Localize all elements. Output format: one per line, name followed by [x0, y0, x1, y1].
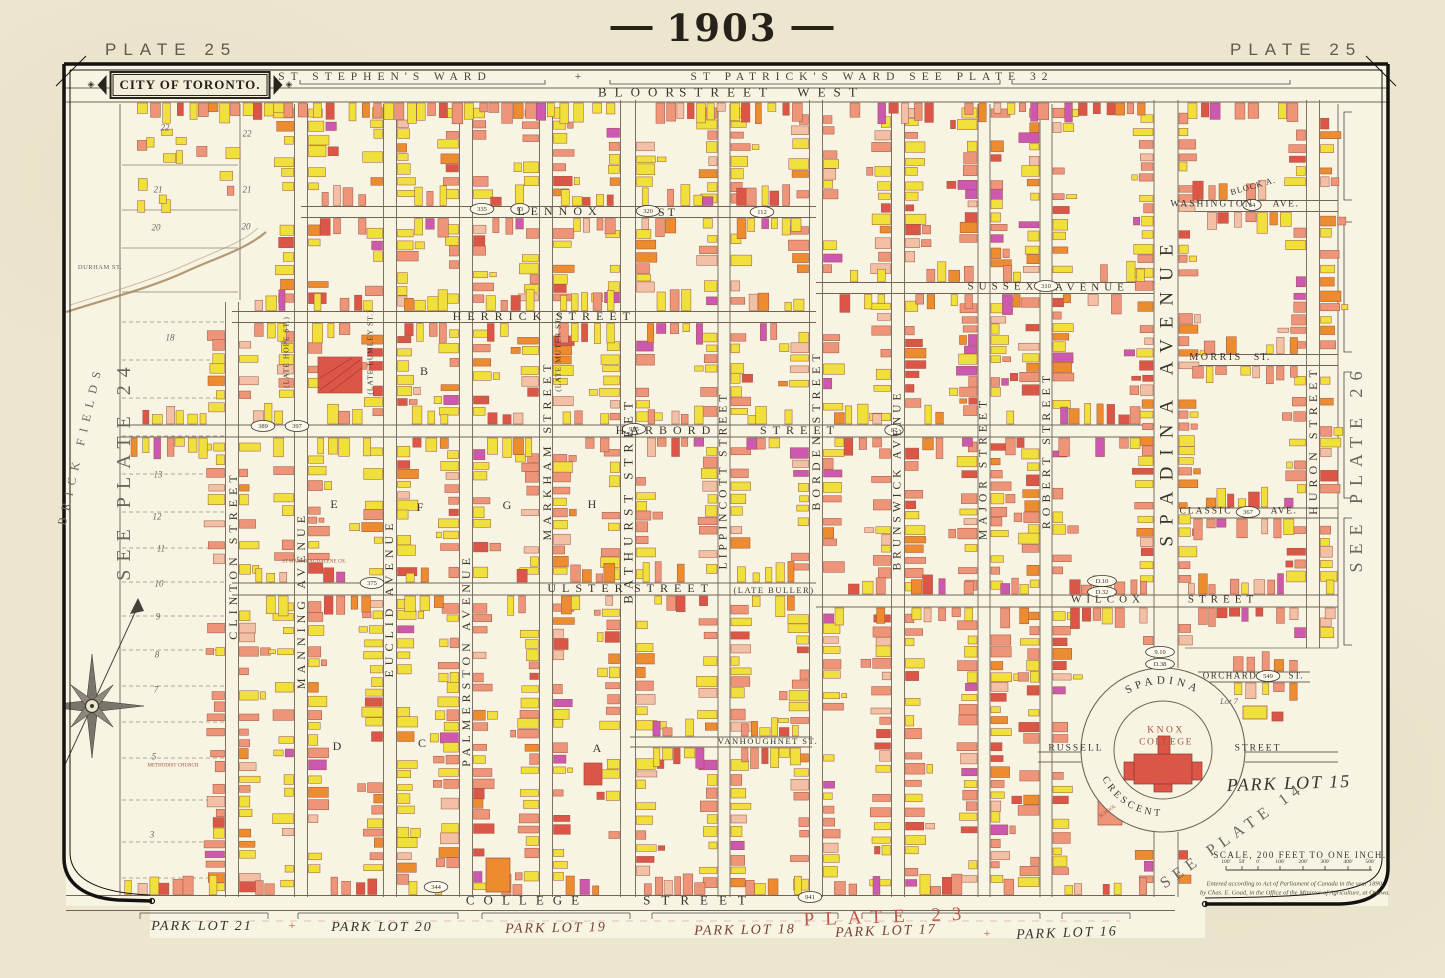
building [797, 636, 809, 644]
building [554, 487, 570, 494]
building [1053, 123, 1061, 133]
building [824, 180, 833, 188]
building [417, 324, 424, 342]
building [966, 190, 978, 199]
building [991, 482, 1011, 490]
building [474, 190, 493, 199]
building [1298, 484, 1306, 493]
building [428, 297, 439, 311]
building [602, 609, 619, 616]
building [309, 466, 327, 475]
building [365, 640, 383, 647]
building [162, 129, 173, 135]
building [526, 103, 537, 118]
building [554, 265, 575, 272]
building [490, 543, 501, 551]
building [438, 290, 447, 311]
building [240, 647, 259, 656]
building [916, 295, 924, 305]
building [405, 596, 416, 612]
building [708, 183, 718, 192]
building [213, 339, 225, 350]
building [226, 148, 240, 159]
building [731, 657, 739, 666]
building [964, 406, 978, 416]
building [961, 753, 977, 764]
building [1030, 580, 1039, 588]
building [1193, 181, 1203, 199]
building [441, 415, 448, 424]
building [610, 462, 619, 473]
building [676, 596, 685, 612]
building [731, 826, 742, 836]
building [207, 468, 225, 477]
building [1053, 722, 1068, 732]
building [874, 385, 891, 391]
building [415, 219, 423, 236]
building [1290, 660, 1298, 671]
building [1053, 786, 1072, 793]
building [700, 801, 717, 812]
building [1097, 404, 1103, 424]
building [490, 272, 497, 276]
building [655, 562, 661, 582]
building [513, 103, 523, 119]
building [152, 414, 162, 424]
building [231, 103, 240, 116]
ward-label-st-stephens: ST STEPHEN'S WARD [278, 71, 492, 83]
building [601, 414, 609, 424]
building [707, 447, 718, 455]
building [1093, 608, 1101, 620]
building [554, 284, 567, 292]
building [1204, 341, 1215, 354]
building [582, 324, 588, 342]
building [506, 219, 513, 235]
building [1285, 178, 1306, 186]
building [554, 755, 567, 763]
building [906, 511, 919, 519]
building [1179, 205, 1195, 212]
building [177, 103, 183, 116]
building [240, 469, 248, 477]
building [906, 448, 919, 459]
building [742, 374, 753, 382]
building [176, 151, 182, 164]
building [776, 563, 785, 582]
building [137, 140, 147, 150]
building [190, 103, 197, 119]
building [1331, 178, 1339, 186]
building [1008, 103, 1015, 114]
building [596, 574, 603, 582]
building [637, 845, 657, 852]
building [1278, 103, 1286, 119]
building [1139, 456, 1153, 465]
building [1179, 447, 1194, 455]
building [1012, 578, 1019, 594]
building [607, 195, 613, 206]
building [356, 883, 365, 895]
building [964, 582, 973, 594]
building [363, 612, 372, 618]
building [474, 723, 488, 731]
building [876, 765, 891, 772]
building [991, 224, 1007, 230]
building [966, 802, 977, 811]
building [1139, 174, 1153, 181]
building [1101, 265, 1108, 282]
building [602, 512, 619, 519]
building [906, 462, 919, 471]
building [488, 413, 497, 424]
building [1053, 555, 1071, 562]
building [1321, 118, 1329, 129]
building [1247, 657, 1255, 671]
building [1296, 167, 1305, 176]
building [637, 511, 651, 520]
building [1262, 519, 1268, 534]
building [1010, 373, 1018, 380]
building [788, 615, 809, 624]
building [906, 545, 924, 553]
building [1246, 184, 1255, 200]
building [434, 756, 445, 763]
building [151, 103, 161, 117]
building [779, 748, 789, 757]
building [1296, 130, 1305, 140]
building [979, 103, 986, 122]
building [872, 837, 891, 843]
building [1235, 683, 1242, 695]
building [845, 406, 852, 424]
city-of-toronto-cartouche: ◈ CITY OF TORONTO. ◈ [88, 71, 293, 99]
building [607, 324, 615, 343]
building [1321, 265, 1335, 273]
building [637, 707, 648, 715]
building [444, 779, 459, 788]
building [906, 808, 925, 817]
building [1199, 608, 1208, 625]
building [1027, 463, 1039, 471]
building [637, 694, 656, 704]
building [1321, 628, 1334, 638]
building [464, 103, 473, 119]
building [474, 756, 486, 764]
building [1179, 515, 1191, 524]
building [522, 346, 538, 354]
building [1321, 341, 1336, 349]
building [265, 884, 275, 895]
building [355, 295, 362, 310]
building [525, 438, 532, 457]
building [1030, 144, 1039, 150]
building [1241, 367, 1251, 376]
building [911, 580, 921, 594]
building [779, 728, 789, 737]
building [1053, 232, 1066, 240]
building [824, 343, 839, 353]
building [1144, 204, 1153, 213]
building [637, 501, 647, 511]
building [278, 324, 286, 342]
building [901, 103, 908, 124]
building [1179, 468, 1192, 475]
building [366, 718, 383, 726]
building [1254, 580, 1265, 594]
building [277, 365, 293, 374]
building [1206, 498, 1216, 507]
building [554, 378, 568, 384]
building [962, 438, 972, 446]
building [607, 128, 620, 137]
building [968, 201, 977, 207]
building [731, 281, 740, 291]
building [421, 568, 428, 582]
building [285, 865, 293, 872]
building [1020, 585, 1029, 595]
building [398, 399, 408, 406]
building [799, 818, 809, 827]
building [520, 710, 539, 718]
building [279, 237, 294, 247]
building [312, 324, 322, 343]
building [372, 806, 383, 815]
building [863, 581, 874, 594]
building [1002, 379, 1009, 386]
building [216, 809, 224, 817]
building [324, 568, 334, 582]
building [240, 763, 257, 771]
building [440, 639, 448, 647]
building [441, 544, 459, 551]
building [1029, 156, 1039, 166]
building [554, 275, 568, 284]
building [415, 242, 424, 249]
building [960, 813, 978, 820]
building [1053, 848, 1061, 855]
building [969, 398, 977, 405]
building [398, 652, 410, 659]
building [964, 266, 973, 281]
building [1066, 195, 1077, 199]
building [574, 177, 579, 185]
building [923, 438, 934, 450]
building [1189, 256, 1197, 261]
building [960, 399, 967, 404]
building [731, 867, 746, 874]
building [793, 254, 809, 263]
building [637, 142, 655, 151]
building [1321, 168, 1332, 174]
building [364, 865, 383, 871]
building [731, 677, 750, 687]
building [362, 103, 369, 117]
building [881, 204, 890, 213]
building [444, 722, 458, 731]
building [824, 693, 840, 699]
building [326, 103, 334, 119]
building [642, 188, 648, 206]
building [906, 568, 924, 577]
building [637, 477, 646, 485]
copyright-line-2: by Chas. E. Goad, in the Office of the M… [1200, 890, 1390, 897]
ward-separator: + [575, 71, 582, 83]
building [698, 517, 717, 525]
building [768, 879, 778, 895]
building [1020, 866, 1039, 876]
building [637, 240, 656, 249]
building [1022, 166, 1039, 177]
building [448, 451, 459, 459]
badge-number: 112 [757, 209, 767, 216]
building [1030, 123, 1039, 133]
building [314, 294, 321, 311]
building [364, 652, 383, 659]
building [340, 298, 349, 310]
building [963, 165, 977, 176]
building [474, 130, 487, 139]
building [698, 711, 717, 719]
building [779, 718, 789, 722]
building [1014, 513, 1022, 522]
building [1132, 175, 1138, 180]
badge-number: 344 [431, 884, 442, 891]
building [256, 568, 262, 582]
building [705, 365, 717, 372]
building [1127, 261, 1135, 281]
building [1235, 213, 1242, 228]
building [283, 182, 294, 190]
badge-number: 9.10 [1154, 649, 1165, 656]
building [571, 565, 581, 582]
building [298, 103, 307, 117]
building [798, 483, 808, 491]
building [173, 879, 183, 894]
building [681, 185, 690, 206]
building [927, 295, 935, 309]
building [1053, 298, 1064, 307]
building [554, 397, 574, 406]
building [657, 157, 666, 162]
building [240, 749, 249, 759]
building [906, 251, 915, 262]
building [878, 568, 890, 578]
building [143, 410, 149, 424]
building [731, 618, 751, 626]
building [923, 225, 931, 234]
building [554, 629, 564, 639]
building [1286, 240, 1306, 250]
building [474, 799, 484, 809]
building [1063, 295, 1070, 303]
building [746, 880, 754, 894]
building [906, 182, 924, 190]
building [240, 377, 259, 385]
building [1053, 108, 1066, 118]
building [309, 343, 322, 354]
building [699, 596, 707, 606]
building [824, 470, 843, 477]
building [1294, 302, 1306, 312]
building [214, 443, 225, 451]
building [873, 500, 890, 510]
building [1038, 103, 1049, 120]
building [1179, 624, 1191, 632]
building [240, 611, 251, 621]
building [697, 103, 706, 123]
building [279, 379, 294, 388]
building [824, 116, 833, 124]
building [405, 324, 414, 336]
building [208, 376, 225, 386]
building [608, 695, 620, 704]
building [529, 662, 538, 669]
building [709, 842, 717, 849]
building [1179, 636, 1192, 645]
building [212, 692, 225, 700]
building [1179, 875, 1191, 883]
building [450, 358, 459, 366]
building [528, 388, 539, 397]
building [411, 828, 421, 837]
building [1019, 222, 1039, 228]
building [364, 398, 382, 407]
building [1053, 567, 1063, 574]
building [1338, 217, 1346, 225]
building [677, 103, 684, 119]
building [398, 129, 410, 139]
building [873, 414, 882, 424]
building [442, 824, 459, 834]
building [914, 103, 922, 120]
building [697, 676, 718, 687]
building [824, 818, 835, 826]
building [731, 645, 751, 653]
building [450, 672, 458, 683]
building [824, 450, 845, 457]
building [947, 181, 956, 188]
building [1096, 438, 1105, 457]
building [208, 623, 225, 633]
building [349, 103, 356, 121]
building [1007, 411, 1014, 424]
building [240, 542, 260, 549]
building [949, 270, 960, 281]
building [554, 508, 568, 517]
building [1280, 213, 1291, 227]
building [991, 707, 1000, 713]
building [1074, 884, 1081, 895]
building [1248, 103, 1259, 118]
building [325, 482, 332, 490]
building [398, 386, 412, 396]
building [240, 623, 256, 633]
building [1188, 103, 1197, 119]
building [949, 388, 957, 395]
building [1274, 660, 1283, 672]
building [1014, 295, 1021, 308]
building [398, 626, 414, 633]
building [521, 767, 538, 773]
building [731, 775, 742, 786]
building [1027, 255, 1039, 264]
building [183, 876, 193, 894]
building [694, 438, 704, 446]
building [474, 673, 484, 682]
building [309, 735, 318, 746]
building [791, 355, 809, 361]
